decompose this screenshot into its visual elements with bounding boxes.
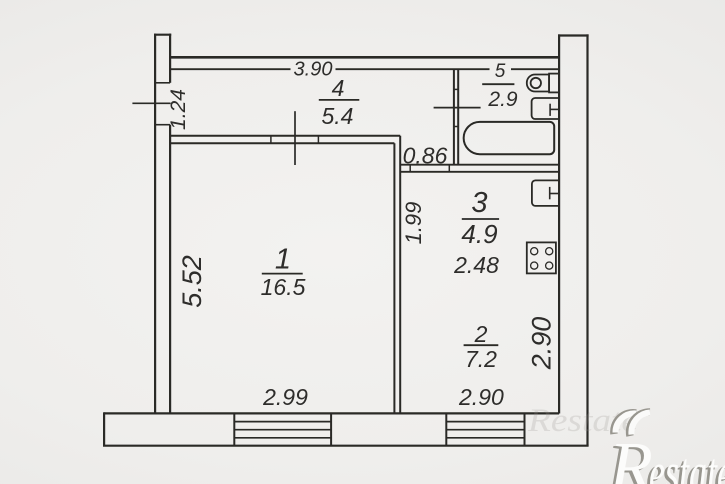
svg-text:7.2: 7.2 (465, 346, 497, 372)
svg-text:0.86: 0.86 (403, 143, 448, 169)
svg-text:1.24: 1.24 (167, 89, 190, 130)
svg-text:16.5: 16.5 (261, 274, 306, 300)
svg-text:1: 1 (275, 244, 291, 276)
svg-text:3.90: 3.90 (294, 59, 333, 81)
svg-text:2.48: 2.48 (453, 252, 499, 278)
svg-text:5.4: 5.4 (322, 103, 354, 129)
svg-text:3: 3 (471, 187, 487, 219)
svg-text:2: 2 (474, 321, 488, 347)
svg-text:2.90: 2.90 (527, 317, 557, 371)
svg-text:5: 5 (495, 61, 506, 82)
svg-text:2.99: 2.99 (262, 384, 308, 410)
svg-text:2.90: 2.90 (458, 384, 504, 410)
svg-text:4.9: 4.9 (461, 219, 497, 249)
svg-text:1.99: 1.99 (401, 202, 426, 245)
svg-text:estate: estate (649, 442, 725, 484)
svg-text:4: 4 (332, 75, 345, 101)
svg-text:2.9: 2.9 (487, 88, 518, 111)
svg-text:5.52: 5.52 (177, 255, 207, 308)
